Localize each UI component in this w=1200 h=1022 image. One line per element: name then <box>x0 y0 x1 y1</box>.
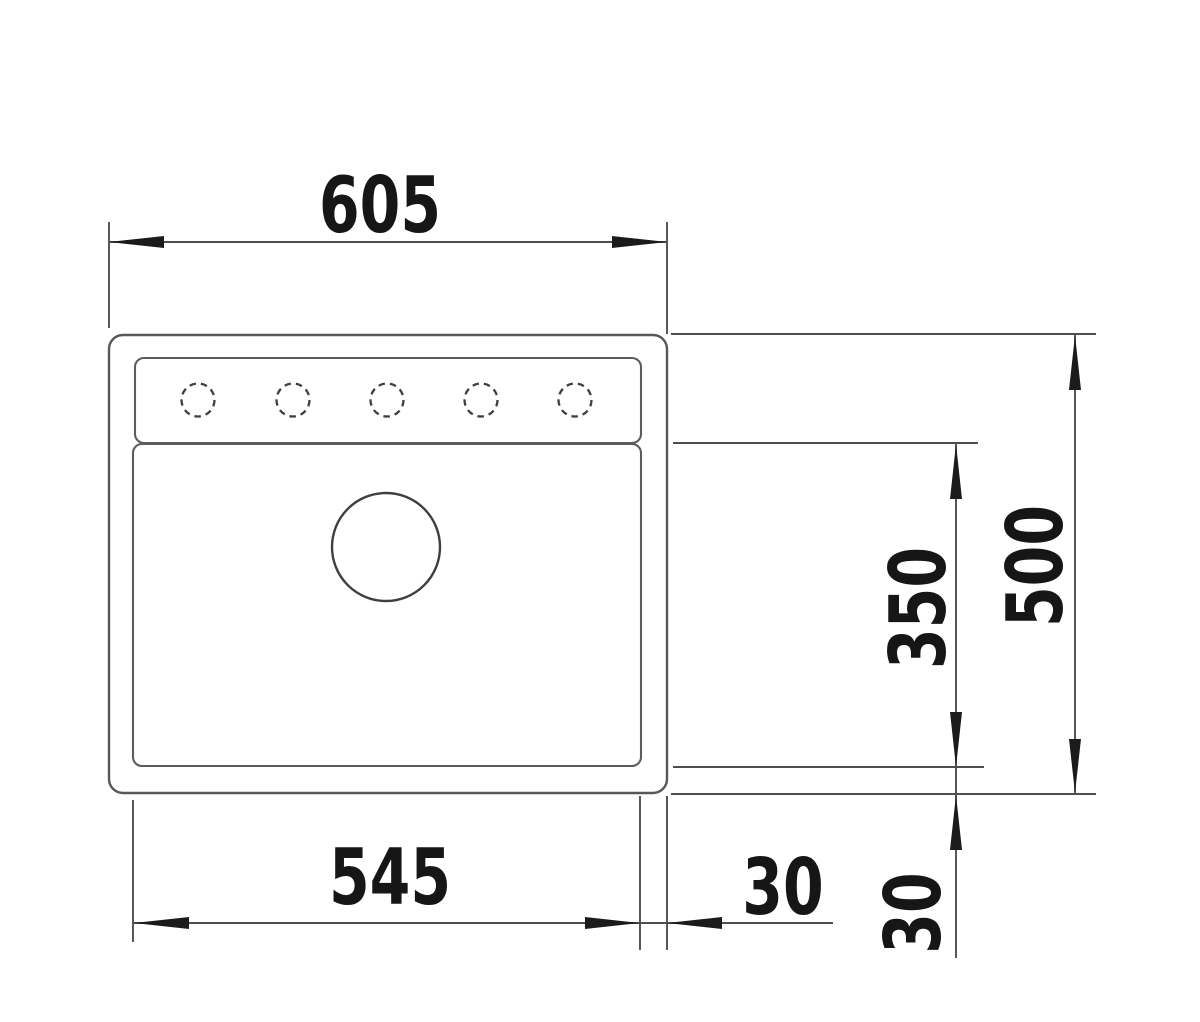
dimension-label-overall-depth: 500 <box>991 505 1082 627</box>
technical-drawing-canvas: 605 500 350 30 545 30 <box>0 0 1200 1022</box>
dimension-label-right-offset: 30 <box>742 843 823 934</box>
dimension-label-bottom-offset: 30 <box>869 872 960 953</box>
dimension-label-bowl-width: 545 <box>329 833 451 924</box>
tap-hole-icon-2 <box>277 384 310 417</box>
sink-outer-outline <box>109 335 667 793</box>
tap-hole-icon-4 <box>465 384 498 417</box>
dimension-label-bowl-depth: 350 <box>874 547 965 669</box>
tap-hole-icon-1 <box>182 384 215 417</box>
dimension-label-overall-width: 605 <box>319 161 441 252</box>
arrowhead-500-bottom <box>1069 739 1081 793</box>
arrowhead-500-top <box>1069 335 1081 390</box>
arrowhead-545-left <box>134 917 189 929</box>
arrowhead-605-right <box>612 236 667 248</box>
arrowhead-545-right <box>585 917 640 929</box>
arrowhead-30-vertical <box>950 795 962 850</box>
arrowhead-350-bottom <box>950 712 962 767</box>
sink-dimension-drawing: 605 500 350 30 545 30 <box>0 0 1200 1022</box>
arrowhead-605-left <box>109 236 164 248</box>
arrowhead-350-top <box>950 444 962 499</box>
tap-hole-icon-3 <box>371 384 404 417</box>
tap-hole-icon-5 <box>559 384 592 417</box>
tap-ledge-outline <box>135 358 641 443</box>
arrowhead-30-horizontal <box>667 917 722 929</box>
drain-hole-icon <box>332 493 440 601</box>
